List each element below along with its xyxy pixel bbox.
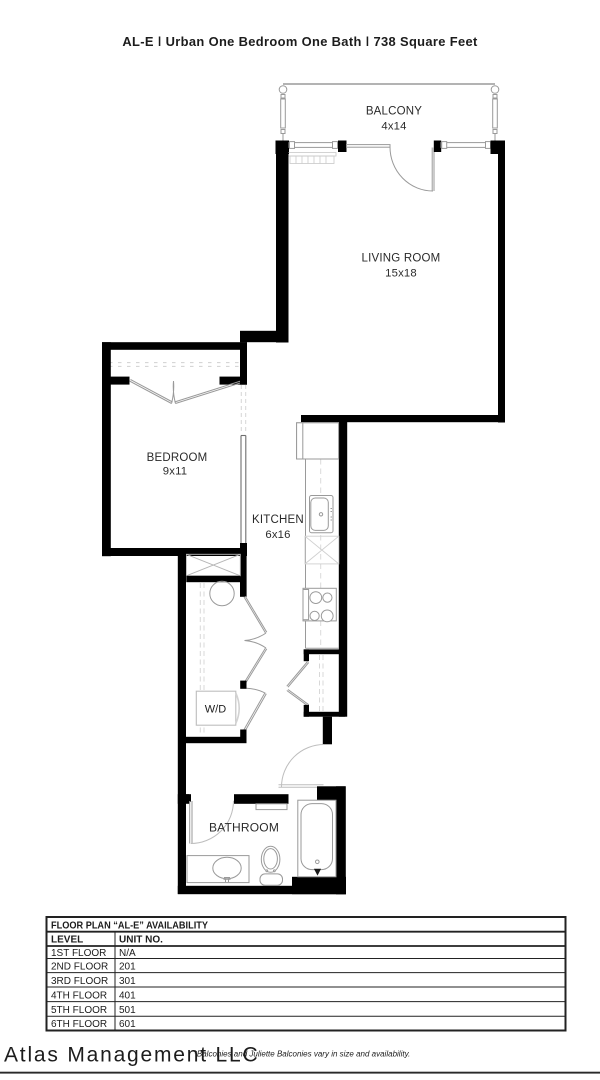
svg-text:W/D: W/D xyxy=(205,704,226,716)
svg-text:5TH FLOOR: 5TH FLOOR xyxy=(51,1005,107,1016)
svg-text:N/A: N/A xyxy=(119,948,136,959)
svg-text:AL-E ǀ Urban One Bedroom One B: AL-E ǀ Urban One Bedroom One Bath ǀ 738 … xyxy=(122,34,478,49)
svg-text:9x11: 9x11 xyxy=(163,466,187,478)
svg-text:BALCONY: BALCONY xyxy=(366,106,422,118)
svg-text:15x18: 15x18 xyxy=(385,268,417,280)
svg-text:6TH FLOOR: 6TH FLOOR xyxy=(51,1019,107,1030)
svg-text:4TH FLOOR: 4TH FLOOR xyxy=(51,990,107,1001)
svg-text:*Balconies and Juliette Balcon: *Balconies and Juliette Balconies vary i… xyxy=(194,1050,410,1059)
svg-text:FLOOR PLAN “AL-E” AVAILABILITY: FLOOR PLAN “AL-E” AVAILABILITY xyxy=(51,920,208,932)
svg-text:2ND FLOOR: 2ND FLOOR xyxy=(51,962,108,973)
svg-text:401: 401 xyxy=(119,990,136,1001)
svg-text:BEDROOM: BEDROOM xyxy=(147,452,208,464)
svg-text:1ST FLOOR: 1ST FLOOR xyxy=(51,948,106,959)
svg-text:201: 201 xyxy=(119,962,136,973)
svg-text:UNIT NO.: UNIT NO. xyxy=(119,935,163,946)
svg-text:6x16: 6x16 xyxy=(265,529,290,541)
svg-text:LIVING ROOM: LIVING ROOM xyxy=(362,253,441,265)
svg-text:LEVEL: LEVEL xyxy=(51,935,83,946)
svg-text:301: 301 xyxy=(119,976,136,987)
svg-text:601: 601 xyxy=(119,1019,136,1030)
svg-text:BATHROOM: BATHROOM xyxy=(209,821,279,835)
svg-text:3RD FLOOR: 3RD FLOOR xyxy=(51,976,108,987)
svg-text:4x14: 4x14 xyxy=(381,121,406,133)
svg-text:KITCHEN: KITCHEN xyxy=(252,514,304,526)
svg-text:501: 501 xyxy=(119,1005,136,1016)
